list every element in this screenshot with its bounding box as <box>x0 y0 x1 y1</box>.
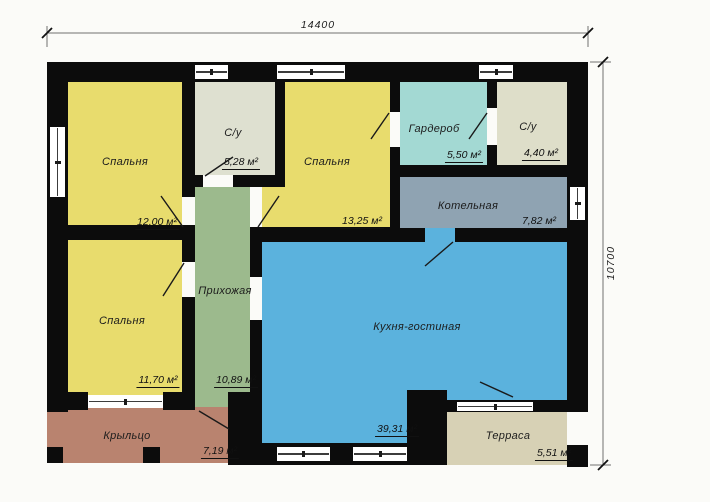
area-kitchen: 39,31 м² <box>375 423 419 437</box>
door-kitchen-terrace <box>457 402 533 411</box>
label-boiler: Котельная <box>438 200 498 212</box>
window-kitchen-bottom-1 <box>277 447 330 461</box>
room-bedroom-2-ext <box>262 187 285 227</box>
window-kitchen-bottom-2 <box>353 447 407 461</box>
pillar-porch-middle <box>143 447 160 463</box>
wall-hallway-right-upper <box>250 242 262 277</box>
room-bedroom-1 <box>68 82 182 225</box>
label-bedroom-2: Спальня <box>304 156 350 168</box>
area-boiler: 7,82 м² <box>520 215 558 229</box>
dimension-width-label: 14400 <box>301 19 335 31</box>
window-bedroom1-left <box>50 127 65 197</box>
label-bedroom-1: Спальня <box>102 156 148 168</box>
area-hallway: 10,89 м² <box>214 374 258 388</box>
wall-boiler-bottom-right <box>455 228 567 242</box>
dimension-height-label: 10700 <box>605 246 617 280</box>
wall-bedroom3-right-lower <box>182 297 195 400</box>
wall-bathroom1-bottom-left <box>182 175 203 187</box>
window-bedroom3-bottom <box>88 395 163 408</box>
area-bathroom-1: 5,28 м² <box>222 156 260 170</box>
area-bedroom-2: 13,25 м² <box>340 215 384 229</box>
label-wardrobe: Гардероб <box>409 123 460 135</box>
room-kitchen-doorgap <box>425 228 455 242</box>
window-bathroom2-top <box>479 65 513 79</box>
wall-bathroom1-right <box>275 82 285 180</box>
area-porch: 7,19 м² <box>201 445 239 459</box>
pillar-porch-left <box>47 447 63 463</box>
wall-bedroom2-bottom <box>250 227 390 242</box>
label-kitchen: Кухня-гостиная <box>373 321 460 333</box>
label-porch: Крыльцо <box>103 430 150 442</box>
wall-right <box>567 62 588 412</box>
wall-boiler-bottom-left <box>390 228 425 242</box>
label-bathroom-1: С/у <box>224 127 241 139</box>
wall-bathroom1-bottom-right <box>233 175 285 187</box>
label-bedroom-3: Спальня <box>99 315 145 327</box>
window-boiler-right <box>570 187 585 220</box>
room-bedroom-2 <box>285 82 390 227</box>
wall-bedroom3-bottom-right <box>163 392 195 410</box>
area-bedroom-1: 12,00 м² <box>135 216 179 230</box>
label-hallway: Прихожая <box>198 285 251 297</box>
window-bedroom2-top <box>277 65 345 79</box>
label-terrace: Терраса <box>486 430 531 442</box>
wall-bedroom3-right-upper <box>182 240 195 262</box>
wall-bedroom2-right-lower <box>390 147 400 230</box>
area-bedroom-3: 11,70 м² <box>136 374 179 388</box>
wall-bedroom2-right-upper <box>390 82 400 112</box>
label-bathroom-2: С/у <box>519 121 536 133</box>
area-terrace: 5,51 м² <box>535 447 573 461</box>
window-bathroom1-top <box>195 65 228 79</box>
area-bathroom-2: 4,40 м² <box>522 147 560 161</box>
floor-plan-drawing: 14400 10700 Спальня 12,00 м² С/у 5,28 м²… <box>0 0 710 502</box>
area-wardrobe: 5,50 м² <box>445 149 483 163</box>
wall-wardrobe-right-upper <box>487 82 497 108</box>
wall-boiler-top <box>395 165 567 177</box>
wall-bedroom3-bottom-left <box>47 392 88 410</box>
